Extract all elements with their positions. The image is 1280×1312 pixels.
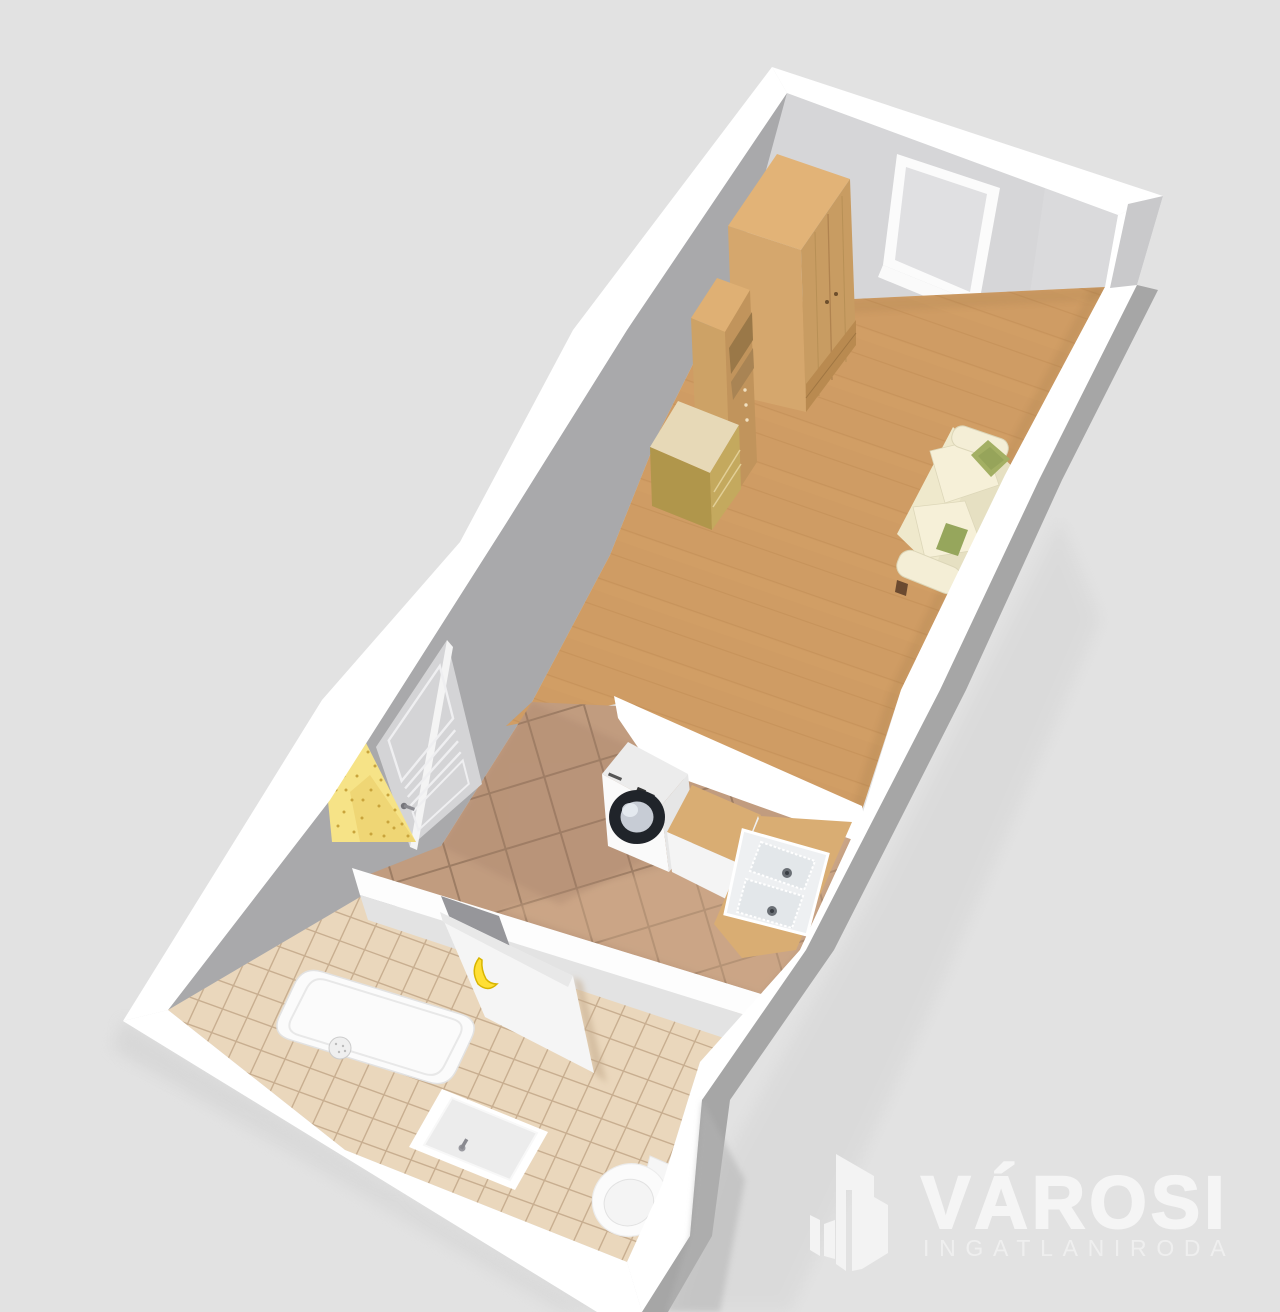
svg-text:VÁROSI: VÁROSI bbox=[921, 1161, 1229, 1244]
svg-text:INGATLANIRODA: INGATLANIRODA bbox=[923, 1235, 1235, 1261]
